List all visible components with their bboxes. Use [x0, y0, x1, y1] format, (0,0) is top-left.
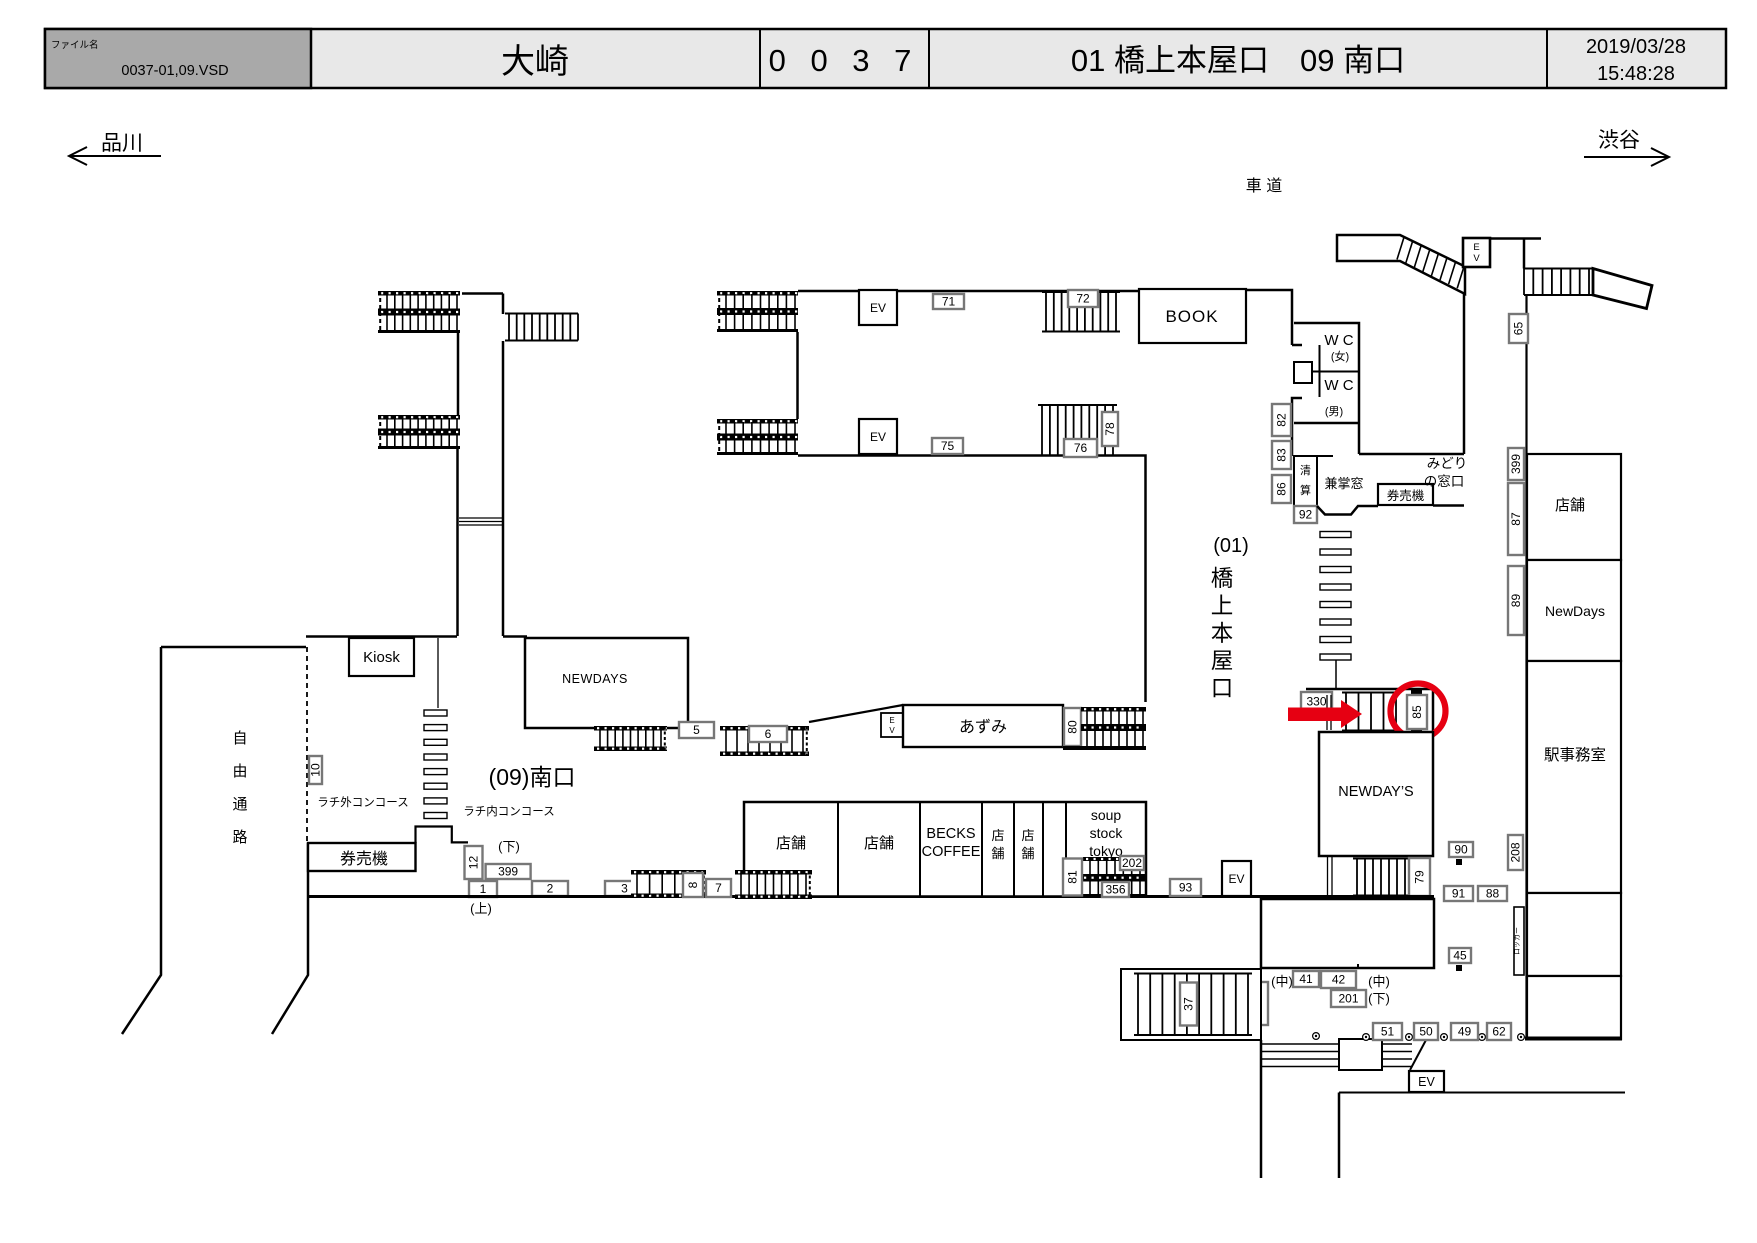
svg-text:店舗: 店舗	[1555, 497, 1585, 514]
svg-text:渋谷: 渋谷	[1598, 129, 1640, 152]
svg-text:75: 75	[941, 439, 955, 453]
svg-text:202: 202	[1122, 856, 1142, 870]
svg-text:92: 92	[1299, 508, 1313, 522]
svg-text:8: 8	[686, 881, 700, 888]
svg-text:屋: 屋	[1211, 649, 1234, 674]
svg-text:大崎: 大崎	[501, 43, 569, 81]
svg-text:店舗: 店舗	[776, 835, 806, 852]
svg-text:E: E	[1473, 242, 1479, 253]
svg-text:7: 7	[715, 881, 722, 895]
svg-text:87: 87	[1509, 512, 1523, 526]
svg-text:舗: 舗	[991, 846, 1004, 861]
svg-text:自: 自	[232, 730, 247, 747]
svg-text:83: 83	[1275, 448, 1289, 462]
svg-text:券売機: 券売機	[1387, 488, 1425, 503]
svg-text:15:48:28: 15:48:28	[1597, 63, 1675, 85]
svg-text:店: 店	[1021, 828, 1034, 843]
svg-text:1: 1	[480, 882, 487, 896]
svg-text:EV: EV	[870, 301, 886, 315]
svg-text:V: V	[889, 726, 895, 735]
svg-text:駅事務室: 駅事務室	[1544, 746, 1606, 764]
svg-text:80: 80	[1066, 720, 1080, 734]
svg-text:85: 85	[1410, 705, 1424, 719]
svg-text:本: 本	[1211, 621, 1234, 646]
svg-text:品川: 品川	[101, 132, 143, 155]
svg-text:通: 通	[232, 796, 247, 813]
svg-text:ファイル名: ファイル名	[51, 39, 99, 51]
svg-text:90: 90	[1454, 843, 1468, 857]
svg-text:V: V	[1473, 253, 1480, 264]
svg-text:45: 45	[1453, 949, 1467, 963]
svg-text:10: 10	[309, 763, 323, 777]
svg-text:の窓口: の窓口	[1424, 473, 1465, 489]
svg-text:78: 78	[1103, 422, 1117, 436]
svg-text:算: 算	[1300, 483, 1311, 497]
svg-text:(09)南口: (09)南口	[489, 764, 576, 790]
svg-text:Kiosk: Kiosk	[363, 649, 400, 666]
svg-text:6: 6	[765, 727, 772, 741]
svg-text:ラチ内コンコース: ラチ内コンコース	[463, 804, 554, 818]
svg-text:49: 49	[1458, 1025, 1472, 1039]
svg-text:NEWDAYS: NEWDAYS	[562, 672, 628, 686]
svg-text:(中): (中)	[1368, 974, 1390, 989]
svg-text:(中): (中)	[1271, 974, 1293, 989]
svg-text:50: 50	[1419, 1025, 1433, 1039]
svg-text:76: 76	[1074, 441, 1088, 455]
svg-text:舗: 舗	[1021, 846, 1034, 861]
svg-text:51: 51	[1381, 1025, 1395, 1039]
svg-text:3: 3	[621, 882, 628, 896]
svg-text:330: 330	[1306, 695, 1326, 709]
svg-text:NEWDAY’S: NEWDAY’S	[1338, 784, 1413, 800]
svg-text:(下): (下)	[1368, 991, 1390, 1006]
svg-text:E: E	[889, 716, 894, 725]
svg-text:口: 口	[1211, 676, 1234, 701]
svg-text:88: 88	[1486, 887, 1500, 901]
svg-text:店舗: 店舗	[864, 835, 894, 852]
svg-text:399: 399	[498, 865, 518, 879]
svg-text:NewDays: NewDays	[1545, 603, 1605, 619]
svg-text:0037-01,09.VSD: 0037-01,09.VSD	[121, 63, 228, 79]
svg-text:EV: EV	[870, 430, 886, 444]
svg-text:W C: W C	[1324, 377, 1353, 394]
svg-text:62: 62	[1492, 1025, 1506, 1039]
svg-text:91: 91	[1452, 887, 1466, 901]
svg-text:(男): (男)	[1325, 406, 1343, 418]
svg-text:65: 65	[1512, 322, 1526, 336]
svg-text:(下): (下)	[498, 839, 520, 854]
svg-text:橋: 橋	[1211, 566, 1234, 591]
svg-text:tokyo: tokyo	[1089, 843, 1123, 859]
svg-text:12: 12	[467, 856, 481, 870]
svg-text:stock: stock	[1090, 825, 1124, 841]
svg-text:2: 2	[547, 882, 554, 896]
svg-text:201: 201	[1338, 992, 1358, 1006]
svg-text:W C: W C	[1324, 332, 1353, 349]
svg-text:(女): (女)	[1331, 349, 1349, 363]
svg-text:由: 由	[232, 763, 247, 780]
svg-text:COFFEE: COFFEE	[922, 844, 981, 860]
svg-text:車 道: 車 道	[1246, 177, 1282, 195]
svg-text:EV: EV	[1418, 1075, 1435, 1089]
svg-text:(上): (上)	[470, 901, 492, 916]
svg-text:356: 356	[1105, 883, 1125, 897]
svg-text:208: 208	[1509, 842, 1523, 862]
svg-text:86: 86	[1275, 482, 1289, 496]
svg-text:路: 路	[232, 829, 247, 846]
svg-text:EV: EV	[1228, 872, 1244, 886]
svg-text:(01): (01)	[1213, 535, 1249, 557]
svg-text:37: 37	[1182, 997, 1196, 1011]
svg-text:0 0 3 7: 0 0 3 7	[769, 43, 920, 78]
svg-text:2019/03/28: 2019/03/28	[1586, 36, 1686, 58]
svg-text:あずみ: あずみ	[959, 718, 1007, 736]
svg-text:41: 41	[1299, 972, 1313, 986]
svg-text:5: 5	[693, 723, 700, 737]
svg-text:72: 72	[1076, 292, 1090, 306]
svg-text:BECKS: BECKS	[926, 826, 975, 842]
svg-text:ロッカー: ロッカー	[1513, 927, 1521, 955]
svg-text:みどり: みどり	[1427, 456, 1468, 471]
svg-text:BOOK: BOOK	[1165, 307, 1218, 326]
svg-text:店: 店	[991, 828, 1004, 843]
svg-text:兼掌窓: 兼掌窓	[1324, 476, 1363, 491]
svg-text:71: 71	[942, 295, 956, 309]
svg-text:399: 399	[1509, 454, 1523, 474]
svg-text:79: 79	[1413, 870, 1427, 884]
svg-text:42: 42	[1332, 973, 1346, 987]
svg-text:82: 82	[1275, 413, 1289, 427]
svg-text:soup: soup	[1091, 807, 1122, 823]
svg-text:89: 89	[1509, 594, 1523, 608]
svg-text:01 橋上本屋口 09 南口: 01 橋上本屋口 09 南口	[1071, 43, 1405, 78]
svg-text:券売機: 券売機	[340, 850, 388, 868]
svg-text:清: 清	[1300, 464, 1311, 477]
svg-text:81: 81	[1066, 870, 1080, 884]
svg-text:93: 93	[1179, 881, 1193, 895]
svg-text:ラチ外コンコース: ラチ外コンコース	[317, 796, 408, 809]
svg-text:上: 上	[1211, 594, 1234, 619]
